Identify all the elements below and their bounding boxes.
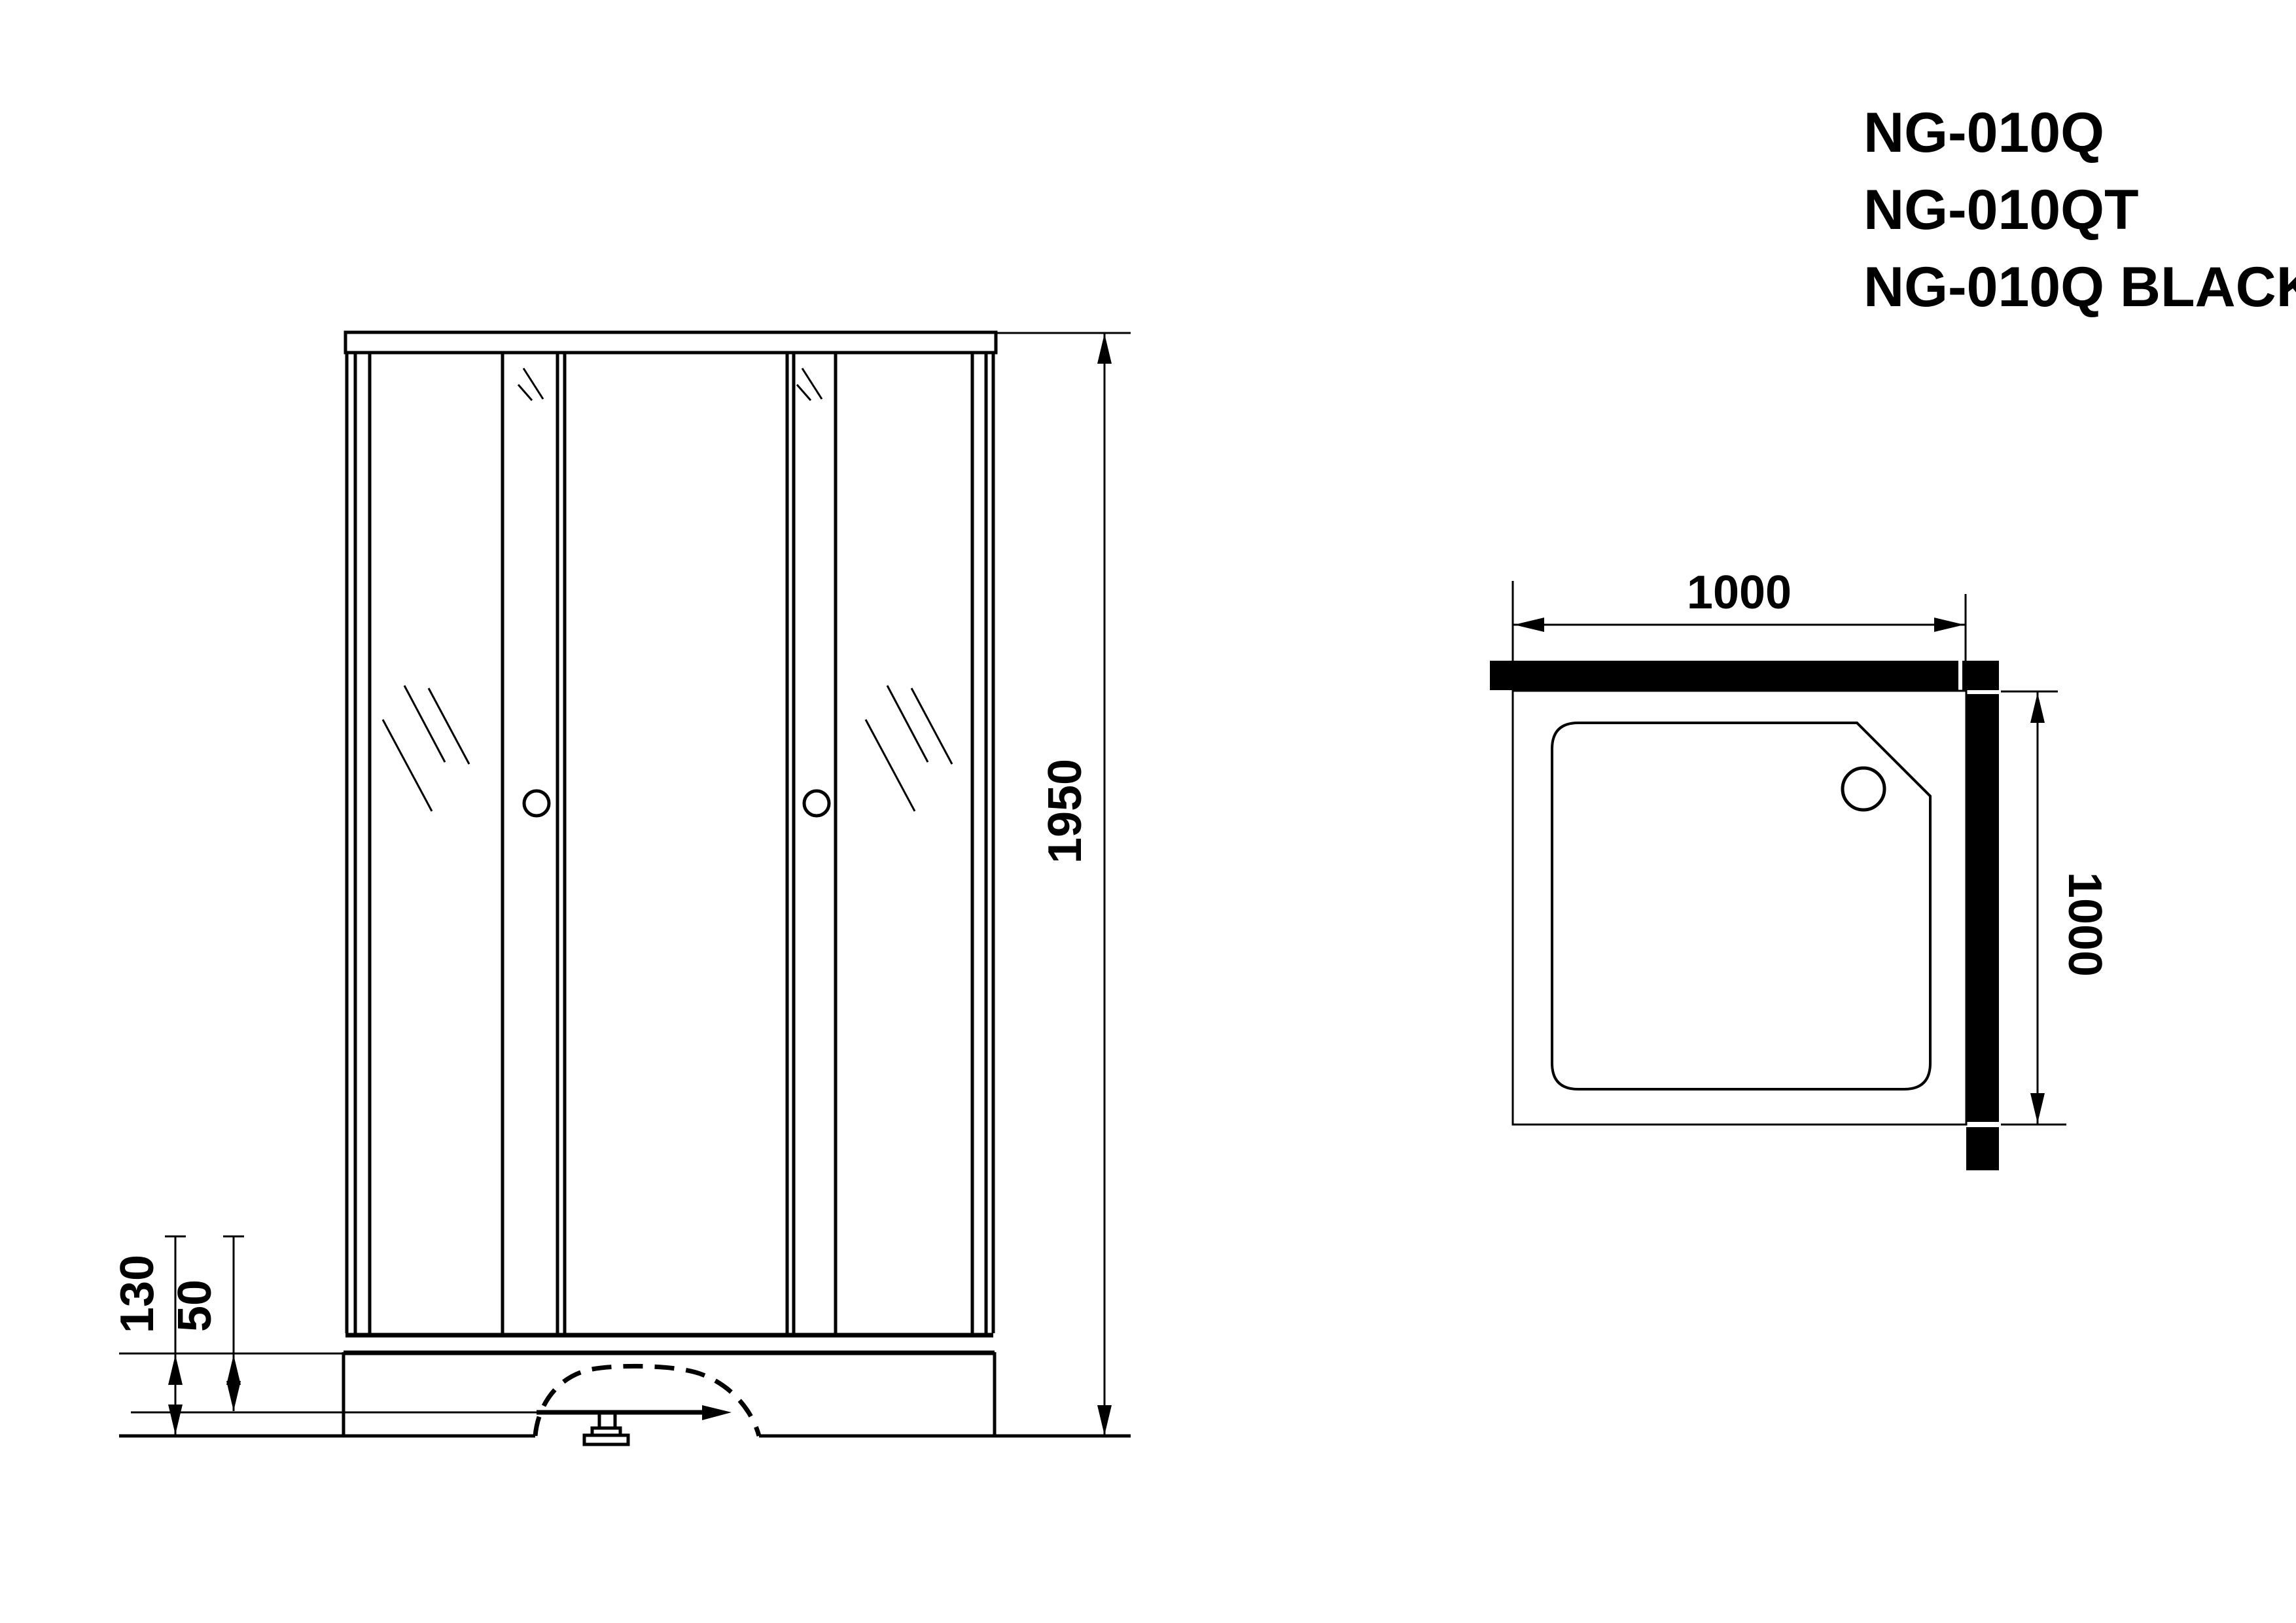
foot-stem <box>599 1413 615 1428</box>
model-name-1: NG-010Q <box>1863 101 2104 164</box>
glass-hatch-line <box>887 686 928 762</box>
wall-profile-right-end <box>1966 1127 1999 1170</box>
glass-hatch-line <box>797 385 811 400</box>
glass-hatch-icon <box>866 686 952 811</box>
depth-dimension-label: 1000 <box>2058 872 2111 977</box>
glass-hatch-line <box>911 688 952 764</box>
arrowhead-icon <box>2030 1093 2045 1123</box>
model-labels: NG-010Q NG-010QT NG-010Q BLACK <box>1863 101 2296 319</box>
arrowhead-icon <box>1097 334 1112 364</box>
glass-hatch-line <box>429 688 469 764</box>
model-name-3: NG-010Q BLACK <box>1863 256 2296 319</box>
wall-profile-corner <box>1962 661 1999 690</box>
arrowhead-icon <box>1934 618 1964 632</box>
dimension-height: 1950 <box>996 333 1131 1436</box>
arrowhead-icon <box>1097 1405 1112 1435</box>
wall-profile-top <box>1490 661 1958 690</box>
glass-hatch-line <box>518 385 532 400</box>
arrowhead-icon <box>2030 693 2045 723</box>
arrowhead-icon <box>226 1381 241 1411</box>
base-height-dimension-label: 130 <box>111 1255 164 1333</box>
drawing-canvas: NG-010Q NG-010QT NG-010Q BLACK <box>0 0 2296 1623</box>
glass-hatch-icon <box>797 368 822 400</box>
top-frame-bar <box>345 332 996 353</box>
dimension-base-height: 130 <box>111 1236 344 1435</box>
arrowhead-icon <box>168 1405 183 1435</box>
glass-hatch-line <box>404 686 445 762</box>
foot-base <box>584 1435 628 1444</box>
vertical-frame-lines <box>347 353 993 1333</box>
dimension-depth: 1000 <box>2001 691 2111 1125</box>
front-view: 1950 130 50 <box>111 332 1131 1444</box>
height-dimension-label: 1950 <box>1039 759 1091 864</box>
glass-hatch-line <box>383 720 432 811</box>
glass-hatch-icon <box>518 368 543 400</box>
drain-hole <box>1843 768 1884 810</box>
adjustable-foot <box>584 1413 628 1444</box>
arrowhead-icon <box>168 1355 183 1385</box>
technical-drawing-page: NG-010Q NG-010QT NG-010Q BLACK <box>0 0 2296 1623</box>
tray-apron-cutout <box>535 1366 759 1436</box>
width-dimension-label: 1000 <box>1687 567 1792 619</box>
wall-profile-right <box>1966 694 1999 1122</box>
door-handle-icon <box>524 791 549 816</box>
glass-hatch-icon <box>383 686 469 811</box>
base-clearance-dimension-label: 50 <box>169 1280 221 1332</box>
arrowhead-icon <box>226 1355 241 1385</box>
model-name-2: NG-010QT <box>1863 179 2139 241</box>
arrowhead-icon <box>702 1405 732 1420</box>
top-view: 1000 1000 <box>1490 567 2111 1170</box>
arrowhead-icon <box>1514 618 1544 632</box>
door-handle-icon <box>804 791 829 816</box>
glass-hatch-line <box>866 720 915 811</box>
